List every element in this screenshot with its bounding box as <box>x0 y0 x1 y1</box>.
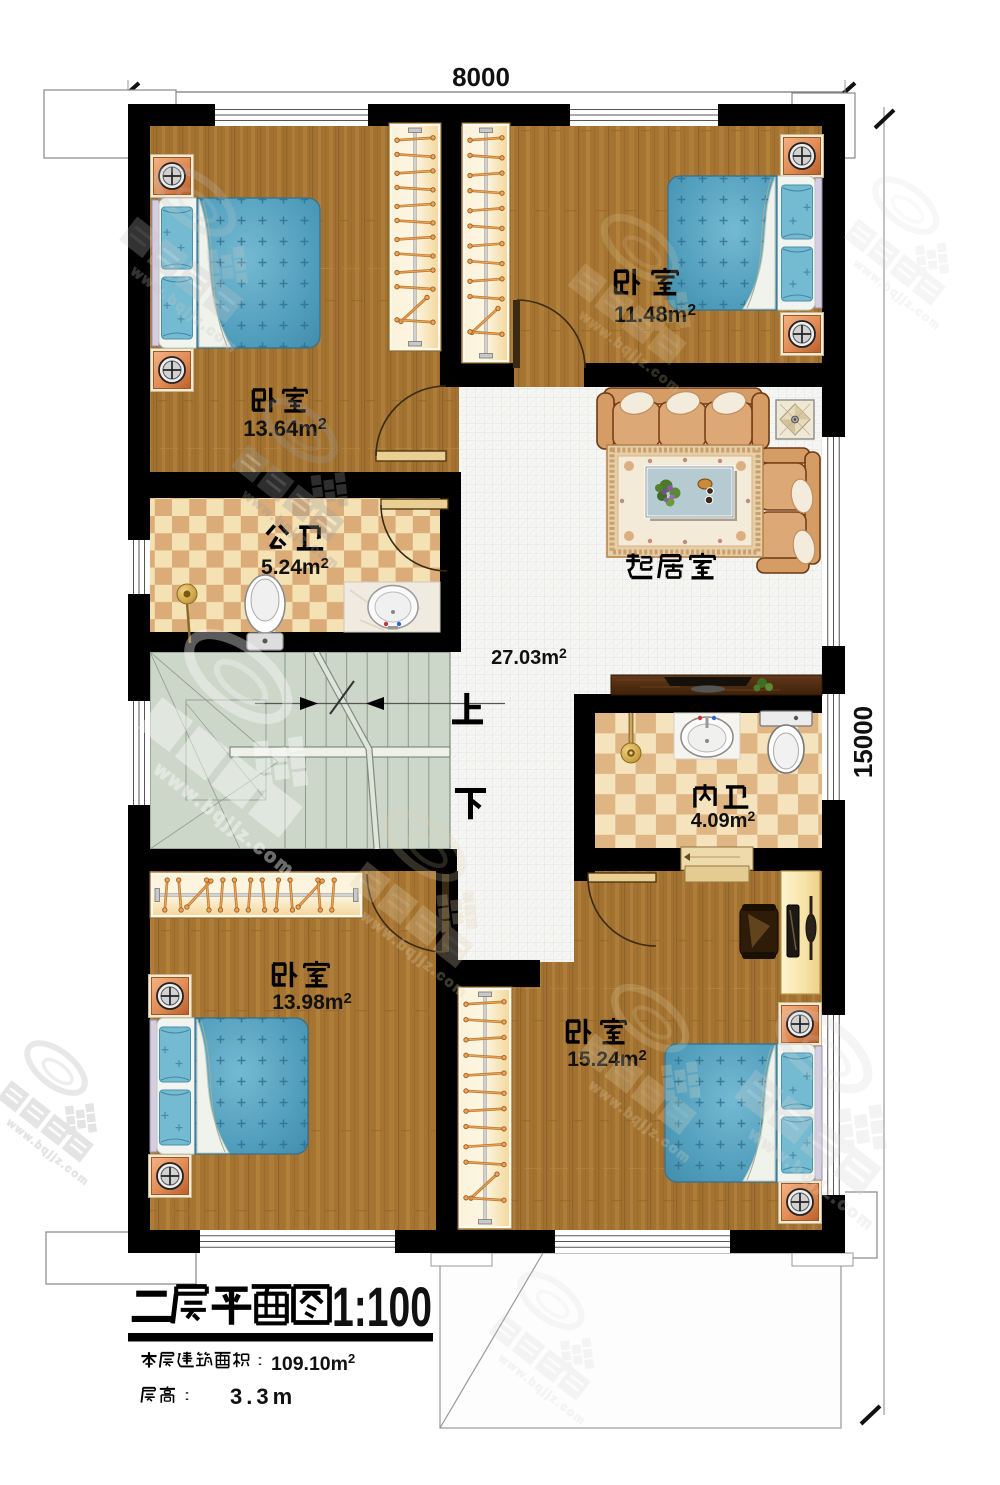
svg-text:4.09m2: 4.09m2 <box>691 808 756 832</box>
svg-text:3.3m: 3.3m <box>230 1384 296 1409</box>
svg-text:109.10m2: 109.10m2 <box>271 1351 355 1375</box>
svg-text:15000: 15000 <box>848 706 878 778</box>
svg-text:8000: 8000 <box>452 62 510 92</box>
svg-text:13.98m2: 13.98m2 <box>272 990 352 1014</box>
svg-text:1:100: 1:100 <box>332 1275 432 1338</box>
svg-text:27.03m2: 27.03m2 <box>491 645 567 669</box>
